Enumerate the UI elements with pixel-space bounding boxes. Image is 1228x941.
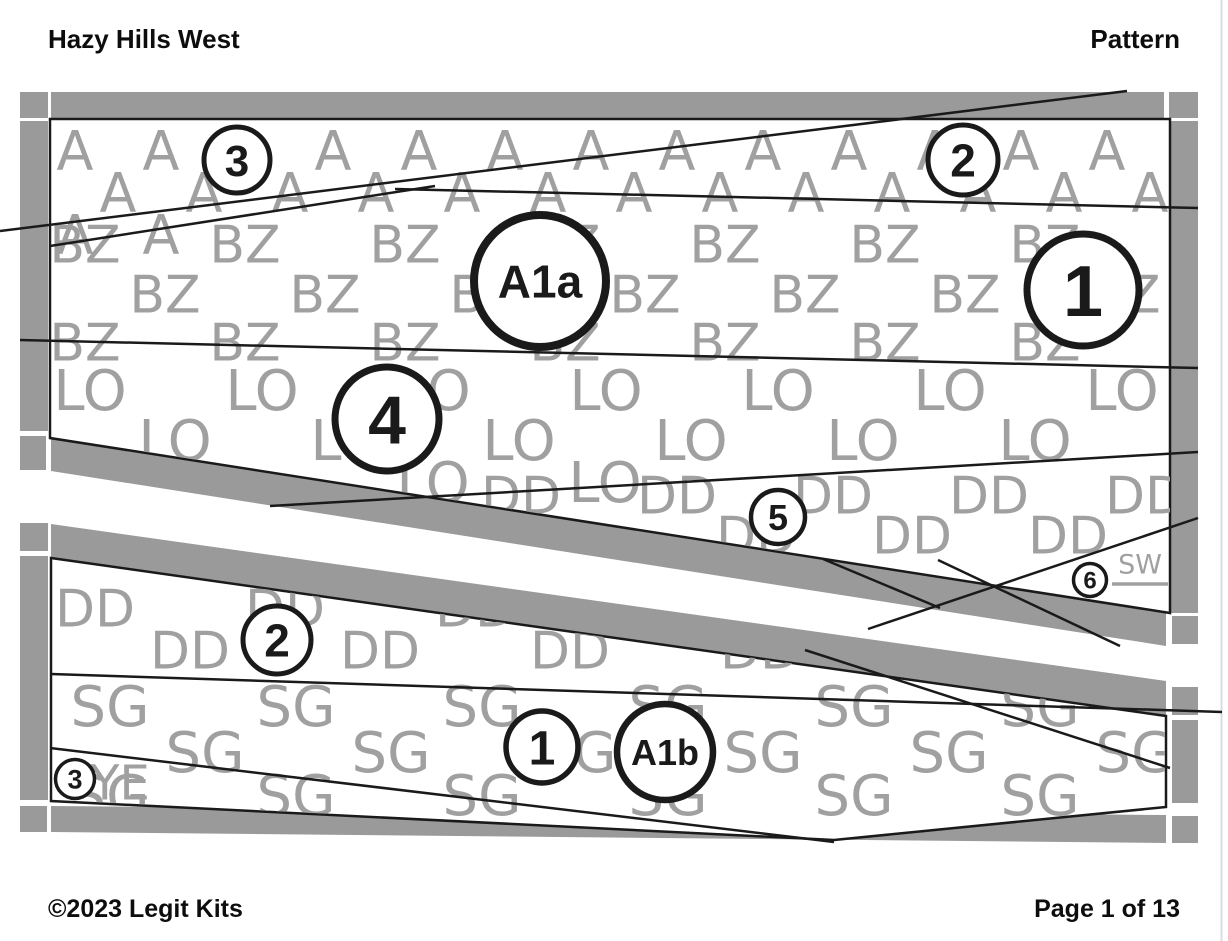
fabric-code-letter: DD: [340, 622, 420, 682]
fabric-code-sw-label: SW: [1112, 550, 1168, 584]
piece-marker-3: 3: [56, 760, 95, 799]
fabric-code-letter: SG: [724, 721, 803, 786]
fabric-code-letter: SG: [815, 764, 894, 829]
fabric-code-letter: SG: [71, 675, 150, 740]
right-border-band: [1172, 720, 1198, 803]
corner-square: [1172, 816, 1198, 843]
fabric-code-letter: DD: [55, 580, 135, 640]
corner-square: [20, 436, 46, 470]
fabric-code-letter: A: [573, 119, 610, 182]
marker-label: A1b: [631, 732, 699, 773]
fabric-code-letter: SG: [1096, 721, 1175, 786]
fabric-code-letter: SW: [1118, 550, 1162, 581]
fabric-code-letter: LO: [569, 359, 642, 424]
fabric-code-letter: LO: [225, 359, 298, 424]
fabric-code-letter: A: [487, 119, 524, 182]
pattern-diagram: AAAAAAAAAAAAAAAAAAAAAAAAAAAABZBZBZBZBZBZ…: [0, 0, 1228, 941]
piece-marker-3: 3: [204, 127, 270, 193]
corner-square: [20, 806, 47, 832]
fabric-code-letter: BZ: [689, 216, 760, 276]
fabric-code-letter: LO: [741, 359, 814, 424]
fabric-code-letter: LO: [998, 409, 1071, 474]
piece-marker-1: 1: [1027, 234, 1139, 346]
fabric-code-letter: A: [745, 119, 782, 182]
fabric-code-letter: LO: [482, 409, 555, 474]
fabric-code-letter: LO: [53, 359, 126, 424]
left-border-band: [20, 121, 48, 431]
corner-square: [1172, 616, 1198, 644]
fabric-code-letter: A: [1132, 161, 1169, 224]
marker-label: 3: [67, 765, 82, 795]
fabric-code-letter: A: [57, 119, 94, 182]
fabric-code-letter: BZ: [929, 266, 1000, 326]
fabric-code-letter: A: [315, 119, 352, 182]
marker-label: 2: [950, 135, 976, 187]
fabric-code-letter: BZ: [209, 216, 280, 276]
fabric-code-letter: BZ: [769, 266, 840, 326]
piece-marker-2: 2: [243, 606, 311, 674]
marker-label: 1: [529, 722, 556, 775]
fabric-code-letter: A: [401, 119, 438, 182]
fabric-code-letter: SG: [166, 721, 245, 786]
fabric-code-letter: SG: [910, 721, 989, 786]
fabric-code-letter: DD: [150, 622, 230, 682]
fabric-code-letter: BZ: [289, 266, 360, 326]
fabric-code-letter: BZ: [369, 216, 440, 276]
piece-marker-5: 5: [751, 490, 805, 544]
fabric-code-letter: DD: [637, 467, 717, 527]
piece-marker-a1b: A1b: [617, 704, 713, 800]
left-border-band: [20, 556, 48, 800]
marker-label: 5: [768, 497, 788, 538]
fabric-code-letter: DD: [872, 507, 952, 567]
fabric-code-letter: A: [1089, 119, 1126, 182]
piece-marker-2: 2: [928, 125, 998, 195]
fabric-code-letter: SG: [352, 721, 431, 786]
corner-square: [1169, 92, 1198, 118]
marker-label: 2: [264, 615, 290, 667]
fabric-code-letter: BZ: [849, 216, 920, 276]
marker-label: 4: [368, 382, 406, 458]
fabric-code-letter: BZ: [609, 266, 680, 326]
pattern-page: Hazy Hills West Pattern: [0, 0, 1228, 941]
fabric-code-letter: A: [143, 119, 180, 182]
fabric-code-letter: LO: [826, 409, 899, 474]
marker-label: 1: [1063, 252, 1103, 332]
marker-label: 3: [225, 137, 249, 186]
fabric-code-letter: SG: [257, 675, 336, 740]
copyright-label: ©2023 Legit Kits: [48, 895, 243, 924]
piece-marker-4: 4: [335, 367, 439, 471]
fabric-code-letter: DD: [949, 467, 1029, 527]
corner-square: [20, 92, 48, 118]
fabric-code-letter: A: [788, 161, 825, 224]
fabric-code-letter: A: [659, 119, 696, 182]
fabric-code-letter: LO: [913, 359, 986, 424]
fabric-code-letter: BZ: [129, 266, 200, 326]
page-indicator: Page 1 of 13: [1034, 895, 1180, 924]
fabric-code-letter: LO: [568, 451, 641, 516]
corner-square: [20, 523, 48, 551]
fabric-code-letter: LO: [1085, 359, 1158, 424]
marker-label: A1a: [498, 256, 583, 308]
piece-marker-6: 6: [1074, 564, 1107, 597]
fabric-code-letter: SG: [815, 675, 894, 740]
fabric-code-letter: A: [1003, 119, 1040, 182]
fabric-code-letter: LO: [654, 409, 727, 474]
fabric-code-letter: DD: [1028, 507, 1108, 567]
top-border-band: [51, 92, 1164, 118]
fabric-code-letter: A: [831, 119, 868, 182]
piece-marker-1: 1: [506, 711, 578, 783]
fabric-code-letter: BZ: [849, 314, 920, 374]
fabric-code-letter: A: [616, 161, 653, 224]
piece-marker-a1a: A1a: [474, 215, 606, 347]
marker-label: 6: [1083, 568, 1096, 595]
